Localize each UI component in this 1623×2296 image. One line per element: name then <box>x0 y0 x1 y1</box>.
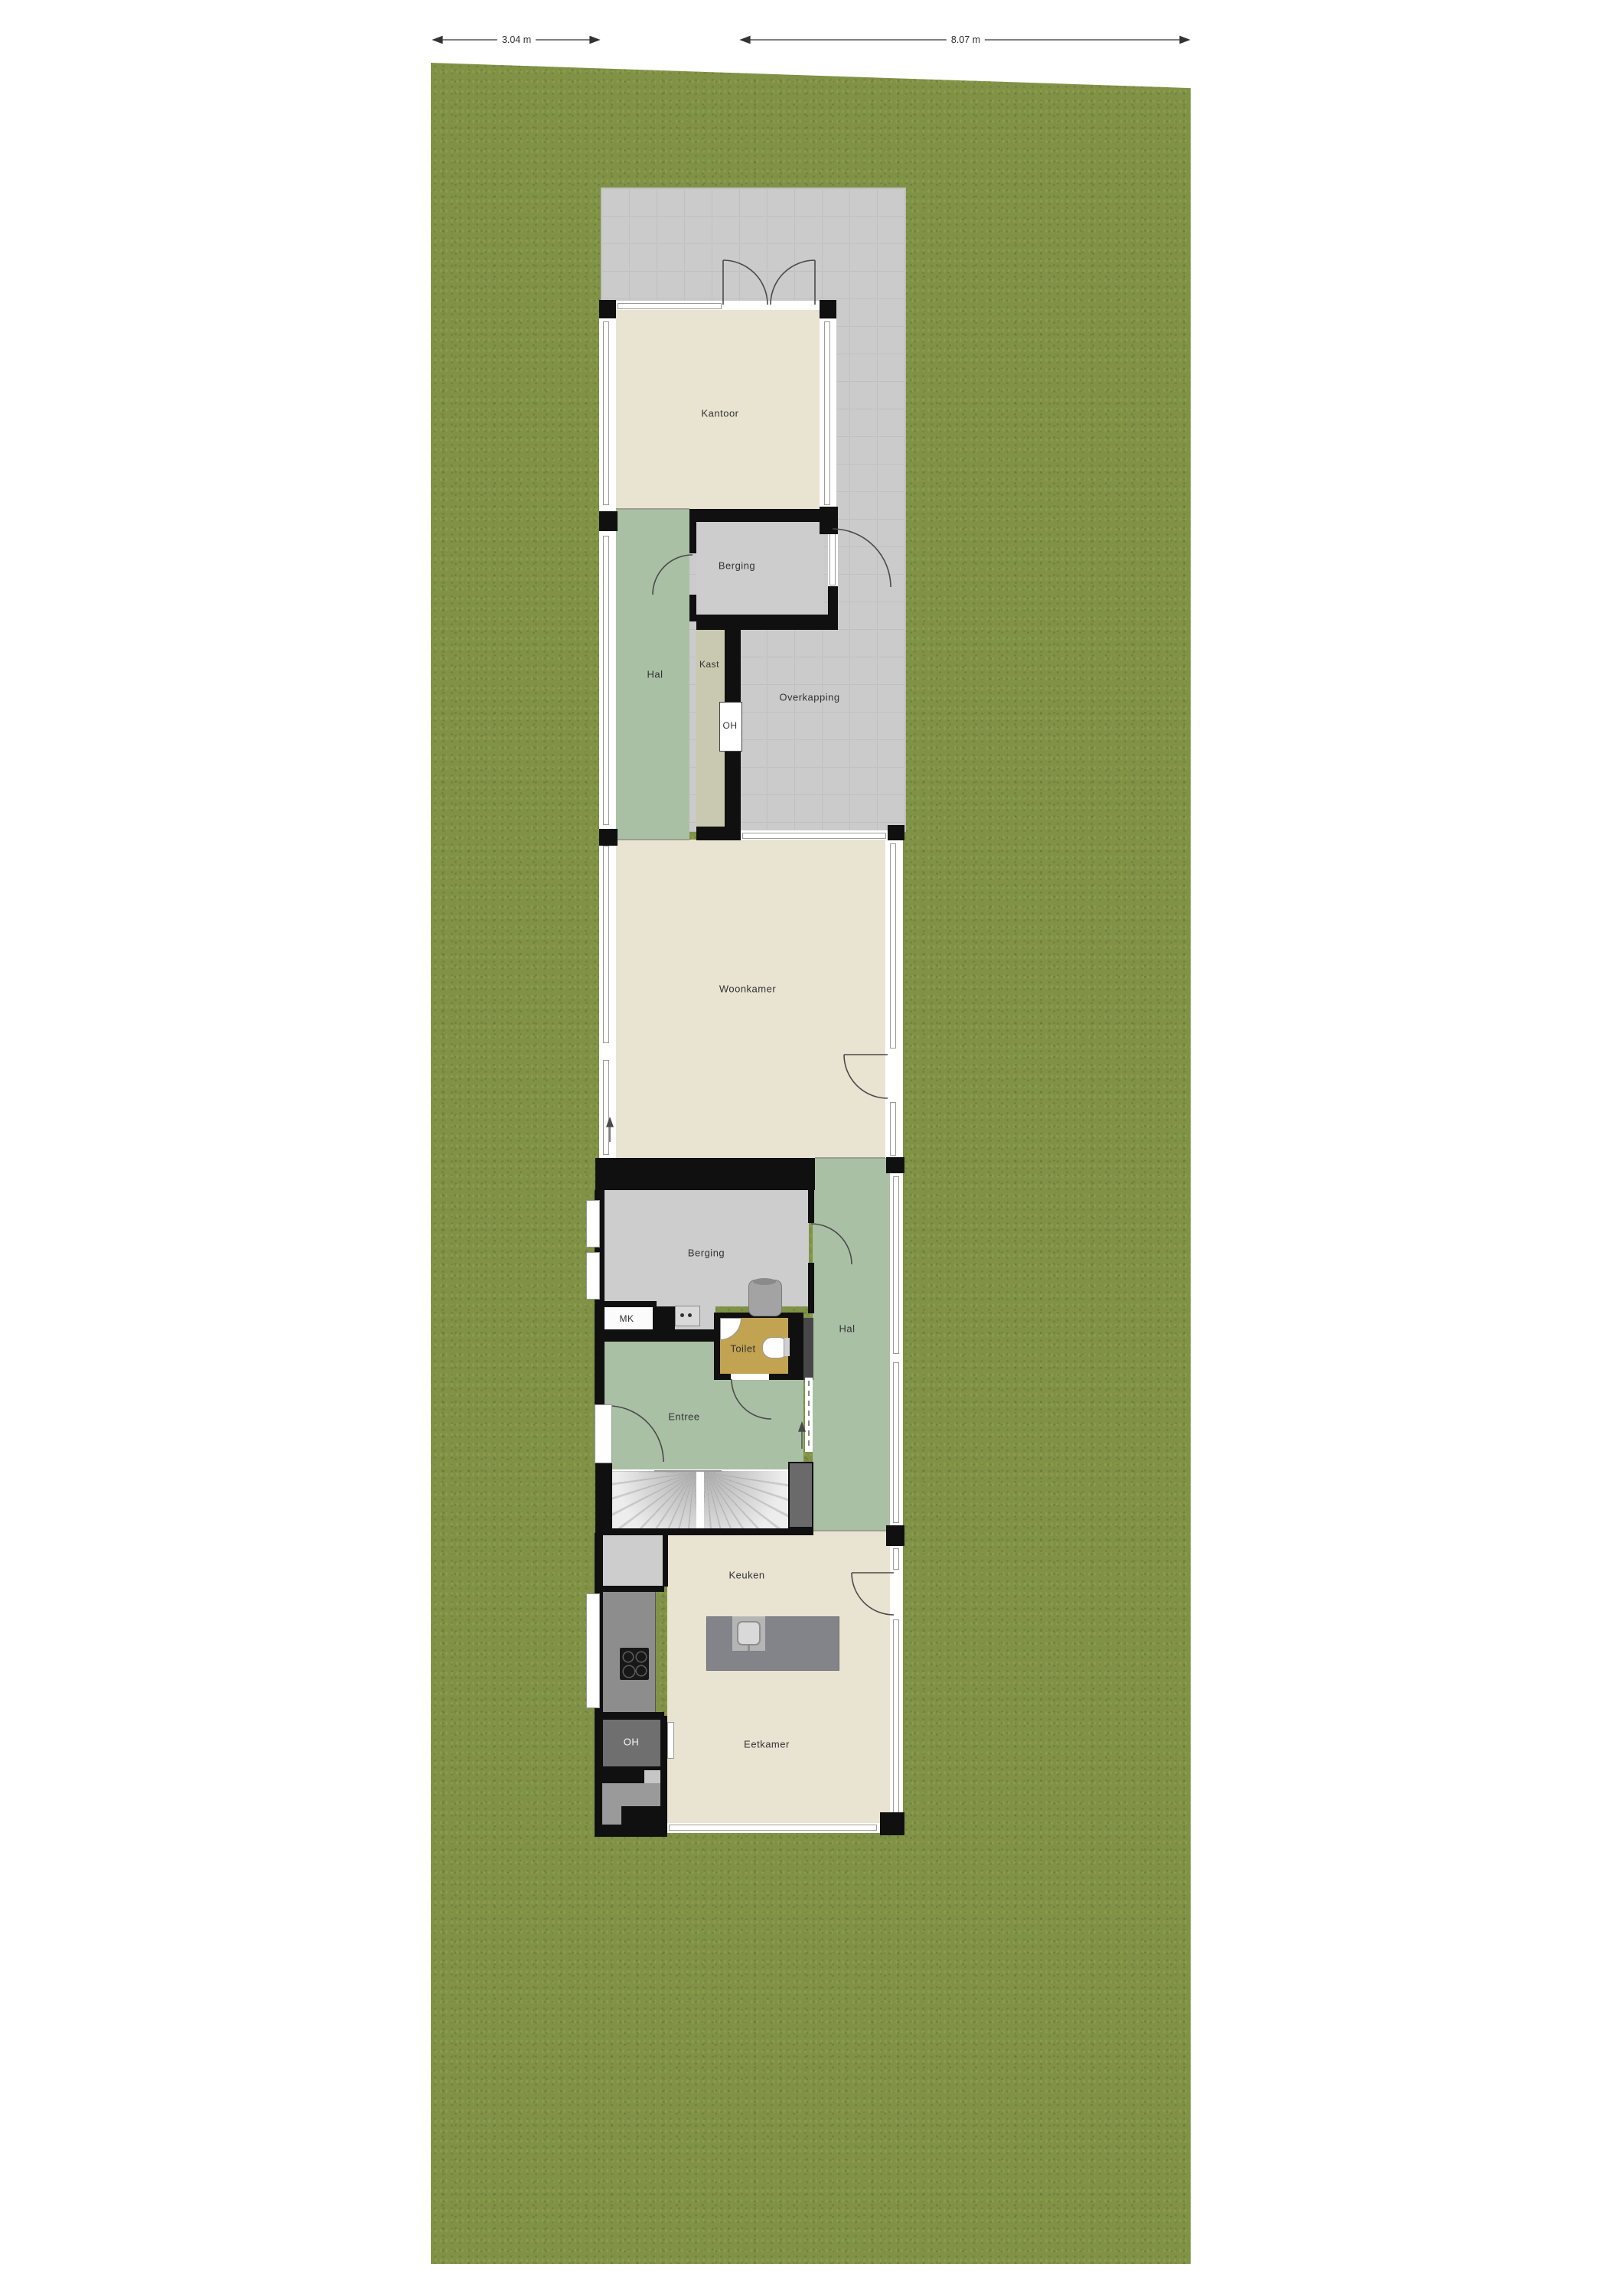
window <box>586 1593 600 1708</box>
wall-segment <box>828 586 838 617</box>
room-label-berging-mid: Berging <box>688 1248 725 1258</box>
room-label-mk: MK <box>620 1314 634 1323</box>
room-label-kantoor: Kantoor <box>701 409 738 419</box>
window <box>603 536 609 825</box>
window <box>603 1060 609 1155</box>
cooktop <box>620 1648 649 1680</box>
wall-segment <box>689 522 696 553</box>
appliance-knob <box>680 1313 684 1317</box>
room-label-toilet: Toilet <box>730 1344 755 1354</box>
stairs-flight-left <box>612 1471 696 1528</box>
wall-segment <box>599 511 618 531</box>
window <box>893 1176 899 1354</box>
wall-segment <box>595 1301 657 1307</box>
wall-segment <box>808 1263 814 1313</box>
window <box>893 1619 899 1817</box>
wall-segment <box>689 595 696 621</box>
side-entry-step <box>602 1783 660 1806</box>
faucet <box>748 1645 750 1651</box>
wall-segment <box>886 1157 904 1173</box>
wall-segment <box>653 1306 675 1329</box>
room-label-entree: Entree <box>668 1412 699 1422</box>
room-label-oh-bottom: OH <box>624 1737 640 1747</box>
wall-segment <box>595 1528 813 1535</box>
door-panel <box>667 1722 674 1759</box>
floor-keuken-eetkamer <box>667 1531 890 1823</box>
partition-dark <box>803 1318 813 1380</box>
wall-segment <box>696 827 741 840</box>
window <box>893 1548 899 1570</box>
floor-berging-top <box>696 520 824 615</box>
floor-divider <box>813 1530 890 1531</box>
kitchen-island <box>706 1616 839 1671</box>
wall-segment <box>595 1586 664 1592</box>
room-label-hal-top: Hal <box>647 670 663 680</box>
dimension-arrowhead <box>741 37 750 44</box>
opening-strip <box>805 1378 813 1452</box>
room-label-hal-mid: Hal <box>839 1324 855 1334</box>
room-label-kast: Kast <box>699 660 719 669</box>
floor-pantry <box>603 1533 663 1586</box>
wall-segment <box>725 630 741 702</box>
entree-door-panel <box>595 1404 612 1463</box>
floor-hal-mid <box>813 1158 890 1531</box>
wall-segment <box>663 1533 668 1587</box>
room-label-overkapping: Overkapping <box>779 693 839 703</box>
wall-segment <box>880 1812 904 1835</box>
window <box>742 833 886 839</box>
window <box>618 303 722 309</box>
dimension-arrowhead <box>590 37 599 44</box>
room-label-oh-top: OH <box>723 721 738 730</box>
wall-segment <box>725 750 741 827</box>
window <box>824 321 830 505</box>
dimension-arrowhead <box>433 37 442 44</box>
wall-segment <box>599 300 616 318</box>
wall-segment <box>820 300 836 318</box>
stair-core-block <box>788 1462 813 1528</box>
island-sink <box>737 1621 761 1645</box>
window <box>603 846 609 1043</box>
wall-segment <box>886 1525 904 1546</box>
toilet-cistern <box>784 1338 790 1356</box>
wall-segment <box>595 1158 815 1190</box>
window <box>890 1102 896 1156</box>
room-label-woonkamer: Woonkamer <box>719 984 776 994</box>
floor-plan-canvas: 3.04 m 8.07 m Kantoor Berging Hal Kast O… <box>0 0 1623 2296</box>
floor-divider <box>815 1157 885 1159</box>
window <box>829 533 836 585</box>
window <box>893 1362 899 1523</box>
dimension-label-left: 3.04 m <box>497 34 536 45</box>
toilet-door-gap <box>731 1374 769 1380</box>
side-entry-step <box>602 1806 621 1825</box>
wall-segment <box>599 829 618 846</box>
window <box>586 1200 600 1247</box>
appliance-knob <box>688 1313 692 1317</box>
dimension-arrowhead <box>1180 37 1189 44</box>
window <box>603 321 609 505</box>
boiler <box>748 1280 782 1316</box>
wall-segment <box>820 507 838 534</box>
floor-woonkamer <box>616 840 885 1158</box>
wall-segment <box>696 615 838 630</box>
boiler-top <box>753 1278 776 1285</box>
stairs-edge-line <box>654 1470 722 1472</box>
room-label-keuken: Keuken <box>728 1570 764 1580</box>
floor-divider <box>616 839 689 840</box>
wall-segment <box>595 1462 612 1531</box>
wall-segment <box>808 1172 814 1223</box>
wall-segment <box>689 509 838 522</box>
window <box>586 1252 600 1300</box>
stairs-flight-right <box>704 1471 788 1528</box>
room-label-eetkamer: Eetkamer <box>744 1740 790 1750</box>
wall-segment <box>595 1712 664 1720</box>
window <box>669 1825 877 1831</box>
dimension-label-right: 8.07 m <box>947 34 985 45</box>
wall-segment <box>595 1329 718 1342</box>
floor-divider <box>616 508 689 510</box>
window <box>890 843 896 1049</box>
wall-segment <box>888 825 904 840</box>
room-label-berging-top: Berging <box>719 561 755 571</box>
